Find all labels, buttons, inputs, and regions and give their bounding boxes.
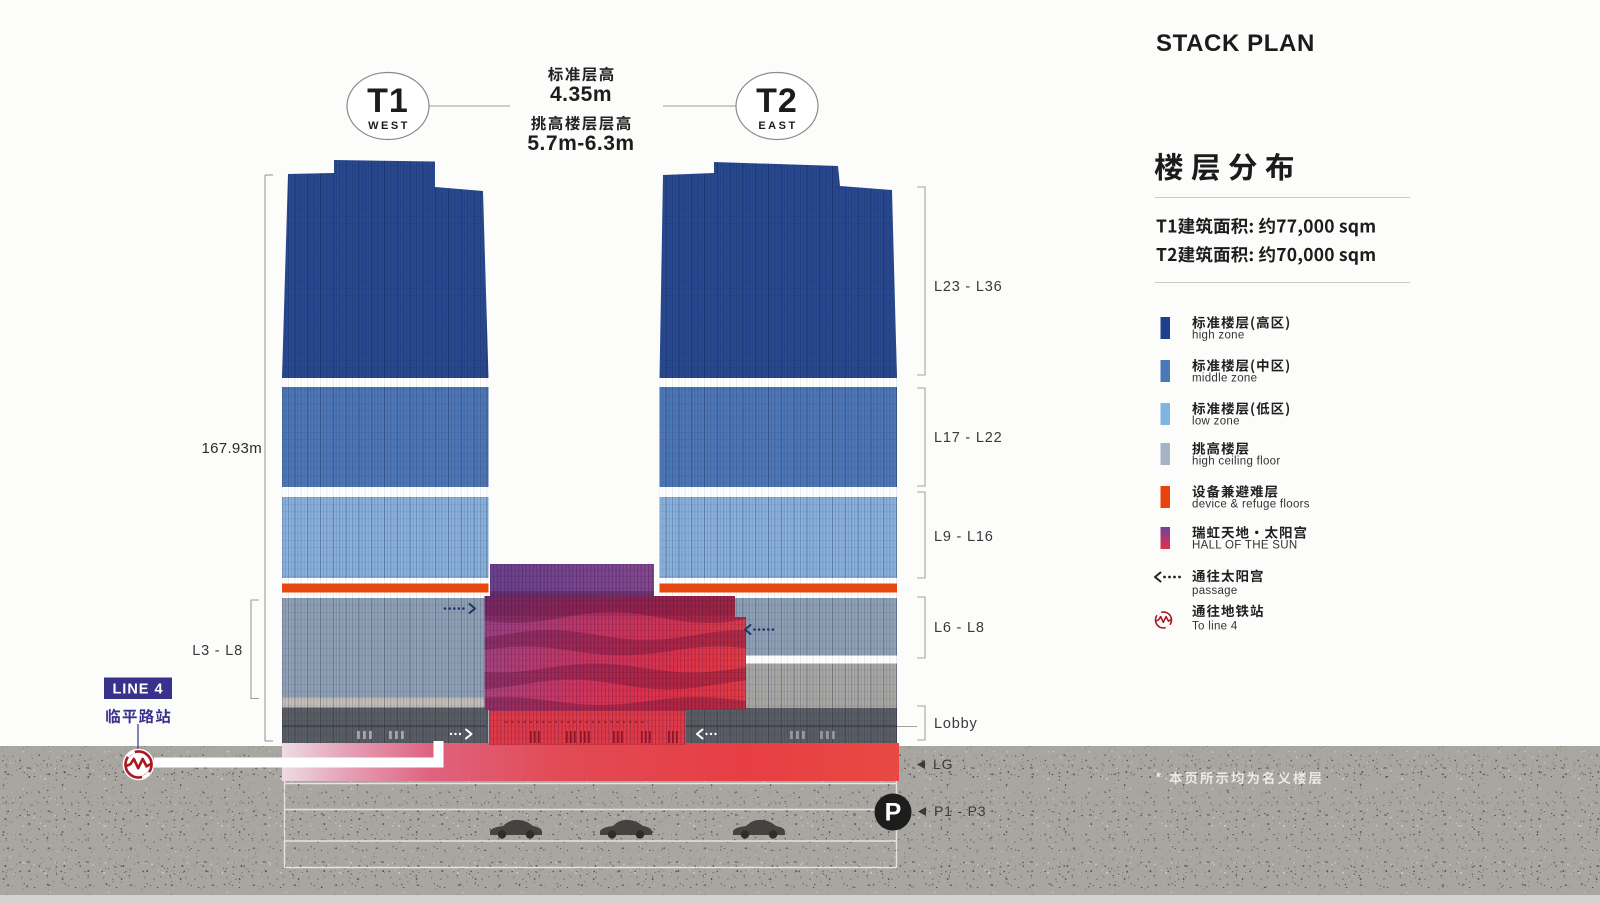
svg-text:WEST: WEST	[368, 120, 410, 132]
svg-text:L3 - L8: L3 - L8	[192, 643, 243, 659]
svg-text:low zone: low zone	[1192, 416, 1240, 428]
svg-text:STACK PLAN: STACK PLAN	[1156, 30, 1315, 57]
svg-text:passage: passage	[1192, 585, 1238, 597]
svg-text:device & refuge floors: device & refuge floors	[1192, 499, 1310, 511]
svg-text:high zone: high zone	[1192, 330, 1245, 342]
svg-text:167.93m: 167.93m	[202, 440, 262, 457]
svg-text:middle zone: middle zone	[1192, 373, 1257, 385]
svg-text:Lobby: Lobby	[934, 716, 978, 732]
svg-text:LG: LG	[933, 756, 953, 772]
svg-text:5.7m-6.3m: 5.7m-6.3m	[527, 132, 634, 155]
svg-text:T2: T2	[756, 82, 798, 120]
svg-text:L6 - L8: L6 - L8	[934, 620, 985, 636]
svg-text:P1 - P3: P1 - P3	[934, 803, 986, 819]
svg-text:EAST: EAST	[758, 120, 797, 132]
svg-text:To line 4: To line 4	[1192, 621, 1238, 633]
svg-text:L17 - L22: L17 - L22	[934, 430, 1002, 446]
svg-text:T1: T1	[367, 82, 409, 120]
svg-text:L9 - L16: L9 - L16	[934, 529, 994, 545]
svg-text:P: P	[885, 799, 902, 827]
svg-text:L23 - L36: L23 - L36	[934, 279, 1002, 295]
svg-text:LINE 4: LINE 4	[112, 682, 163, 698]
svg-text:4.35m: 4.35m	[550, 83, 612, 106]
svg-text:HALL OF THE SUN: HALL OF THE SUN	[1192, 540, 1297, 552]
svg-text:high ceiling floor: high ceiling floor	[1192, 456, 1281, 468]
